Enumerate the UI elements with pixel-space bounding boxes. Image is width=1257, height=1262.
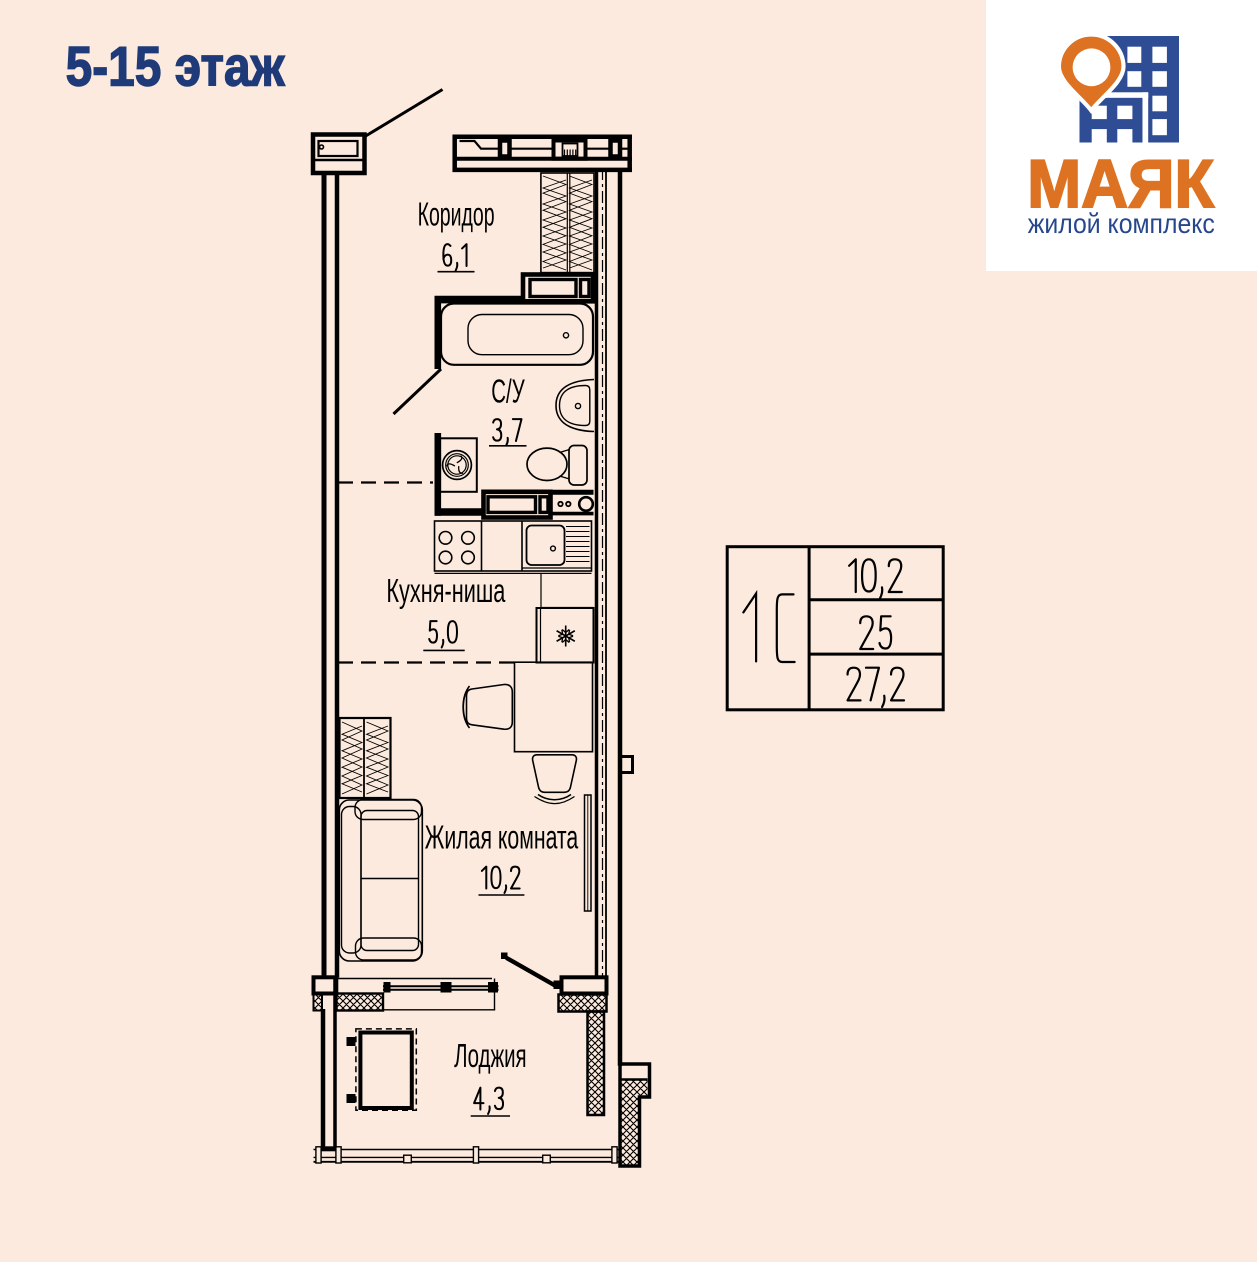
svg-text:Коридор: Коридор [418,196,495,233]
svg-text:жилой комплекс: жилой комплекс [1028,208,1215,239]
svg-text:Жилая комната: Жилая комната [425,818,579,855]
svg-text:Лоджия: Лоджия [454,1037,527,1074]
svg-text:5-15 этаж: 5-15 этаж [66,35,286,98]
svg-text:Кухня-ниша: Кухня-ниша [386,572,505,609]
svg-text:С/У: С/У [491,373,525,410]
